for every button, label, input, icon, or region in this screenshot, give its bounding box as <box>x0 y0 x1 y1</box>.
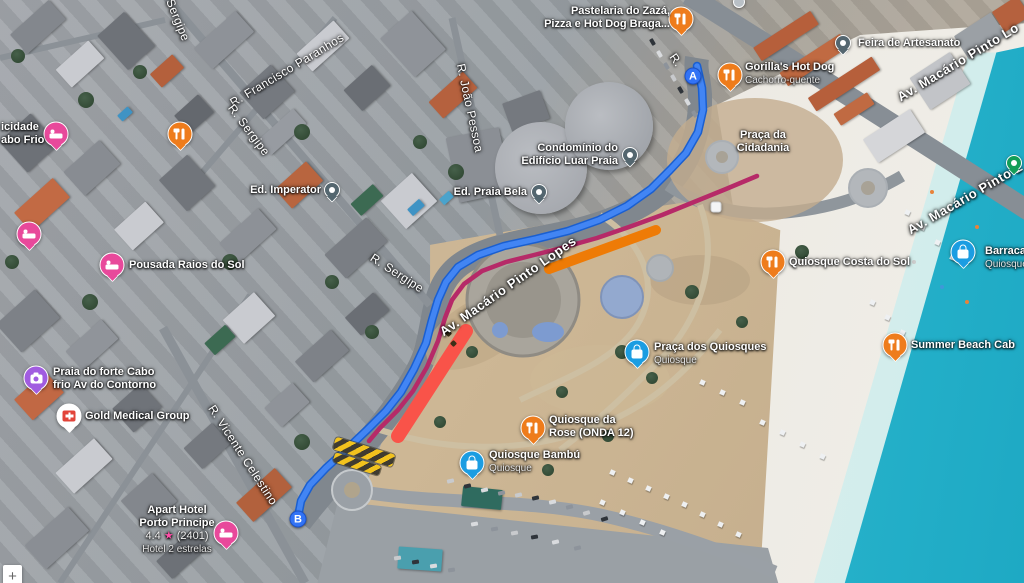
poi-gorillas-hot-dog-label-line: Gorilla's Hot Dog <box>745 61 834 74</box>
knife-icon <box>732 70 735 81</box>
dot-icon <box>1011 160 1017 166</box>
route-end-marker[interactable]: B <box>290 511 307 528</box>
poi-gold-medical-group-label[interactable]: Gold Medical Group <box>85 410 190 423</box>
tree <box>365 325 379 339</box>
poi-summer-beach-label-line: Summer Beach Cab <box>911 339 1015 352</box>
poi-apart-hotel-porto-principe-pin[interactable] <box>214 521 239 546</box>
dot-icon <box>627 152 633 158</box>
poi-quiosque-da-rose-label[interactable]: Quiosque daRose (ONDA 12) <box>549 414 634 440</box>
poi-felicidade-clipped-label-line: icidade <box>1 121 44 134</box>
poi-ed-praia-bela-pin[interactable] <box>531 184 547 200</box>
poi-praca-dos-quiosques-label[interactable]: Praça dos QuiosquesQuiosque <box>654 341 766 367</box>
poi-condominio-luar-praia-label-line: Condomínio do <box>521 142 618 155</box>
poi-praca-da-cidadania-label[interactable]: Praça daCidadania <box>737 129 790 155</box>
beach-umbrella <box>940 285 944 289</box>
poi-ed-praia-bela-label-line: Ed. Praia Bela <box>454 186 527 199</box>
poi-quiosque-bambu-pin[interactable] <box>460 451 485 476</box>
poi-felicidade-clipped-label[interactable]: icidadeabo Frio <box>1 121 44 147</box>
poi-barraca-label-line: Quiosque <box>985 258 1024 271</box>
tree <box>556 386 568 398</box>
tree <box>685 285 699 299</box>
poi-praia-do-forte-label-line: frio Av do Contorno <box>53 379 156 392</box>
beach-umbrella <box>975 225 979 229</box>
poi-barraca-label-line: Barraca <box>985 245 1024 258</box>
poi-apart-hotel-porto-principe-label-line: Porto Principe <box>139 517 214 530</box>
poi-pastelaria-label-line: Pizza e Hot Dog Braga... <box>544 18 670 31</box>
beach-umbrella <box>930 190 934 194</box>
poi-park-pin-pin[interactable] <box>1006 155 1022 171</box>
beach-umbrella <box>912 260 916 264</box>
bed-icon <box>50 134 63 139</box>
hotel-category: Hotel 2 estrelas <box>139 543 214 556</box>
beach-umbrella <box>965 300 969 304</box>
poi-felicidade-clipped-pin[interactable] <box>44 122 69 147</box>
route-start-marker[interactable]: A <box>685 68 702 85</box>
bed-icon <box>23 234 36 239</box>
poi-feira-artesanato-label[interactable]: Feira de Artesanato <box>858 37 960 50</box>
fork-icon <box>890 340 893 351</box>
poi-pousada-raios-do-sol-pin[interactable] <box>100 253 125 278</box>
poi-ed-imperator-label[interactable]: Ed. Imperator <box>250 184 321 197</box>
poi-ed-imperator-pin[interactable] <box>324 182 340 198</box>
poi-condominio-luar-praia-label-line: Edifício Luar Praia <box>521 155 618 168</box>
poi-praca-dos-quiosques-label-line: Praça dos Quiosques <box>654 341 766 354</box>
tree <box>466 346 478 358</box>
poi-summer-beach-pin[interactable] <box>883 333 908 358</box>
fork-icon <box>725 70 728 81</box>
poi-quiosque-costa-do-sol-label[interactable]: Quiosque Costa do Sol <box>789 256 910 269</box>
bed-icon <box>220 533 233 538</box>
poi-praca-da-cidadania-label-line: Praça da <box>737 129 790 142</box>
tree <box>294 124 310 140</box>
poi-apart-hotel-porto-principe-label[interactable]: Apart HotelPorto Principe4.4 ★ (2401)Hot… <box>139 504 214 556</box>
tree <box>448 164 464 180</box>
medical-cross-icon <box>63 411 76 422</box>
shopping-bag-icon <box>958 250 969 259</box>
rating-value: 4.4 <box>145 530 163 542</box>
poi-quiosque-da-rose-label-line: Rose (ONDA 12) <box>549 427 634 440</box>
tree <box>325 275 339 289</box>
poi-quiosque-costa-do-sol-label-line: Quiosque Costa do Sol <box>789 256 910 269</box>
poi-hotel-pin-unlabeled-pin[interactable] <box>17 222 42 247</box>
tree <box>413 135 427 149</box>
fork-icon <box>175 129 178 140</box>
poi-praia-do-forte-label[interactable]: Praia do forte Cabofrio Av do Contorno <box>53 366 156 392</box>
poi-quiosque-bambu-label-line: Quiosque <box>489 462 580 475</box>
camera-icon <box>30 375 42 384</box>
poi-pousada-raios-do-sol-label[interactable]: Pousada Raios do Sol <box>129 259 245 272</box>
dot-icon <box>840 40 846 46</box>
shopping-bag-icon <box>467 461 478 470</box>
poi-quiosque-da-rose-label-line: Quiosque da <box>549 414 634 427</box>
zoom-in-button[interactable]: + <box>3 565 22 583</box>
star-icon: ★ <box>164 530 174 542</box>
poi-gorillas-hot-dog-label-line: Cachorro-quente <box>745 74 834 87</box>
tree <box>434 416 446 428</box>
tree <box>5 255 19 269</box>
poi-restaurant-pin-unlabeled-pin[interactable] <box>168 122 193 147</box>
poi-condominio-luar-praia-pin[interactable] <box>622 147 638 163</box>
poi-feira-artesanato-label-line: Feira de Artesanato <box>858 37 960 50</box>
knife-icon <box>897 340 900 351</box>
tree <box>78 92 94 108</box>
poi-pastelaria-pin[interactable] <box>669 7 694 32</box>
poi-barraca-label[interactable]: BarracaQuiosque <box>985 245 1024 271</box>
fork-icon <box>768 257 771 268</box>
bed-icon <box>106 265 119 270</box>
tree <box>11 49 25 63</box>
poi-quiosque-da-rose-pin[interactable] <box>521 416 546 441</box>
review-count: (2401) <box>174 530 209 542</box>
knife-icon <box>683 14 686 25</box>
poi-gold-medical-group-pin[interactable] <box>57 404 82 429</box>
poi-ed-praia-bela-label[interactable]: Ed. Praia Bela <box>454 186 527 199</box>
poi-praia-do-forte-pin[interactable] <box>24 366 49 391</box>
tree <box>82 294 98 310</box>
poi-barraca-pin[interactable] <box>951 240 976 265</box>
poi-pastelaria-label-line: Pastelaria do Zazá, <box>544 5 670 18</box>
tree <box>646 372 658 384</box>
map-canvas[interactable]: ABPastelaria do Zazá,Pizza e Hot Dog Bra… <box>0 0 1024 583</box>
poi-transit-stop-pin[interactable] <box>711 202 722 213</box>
poi-praca-dos-quiosques-pin[interactable] <box>625 340 650 365</box>
poi-quiosque-bambu-label[interactable]: Quiosque BambúQuiosque <box>489 449 580 475</box>
poi-pastelaria-label[interactable]: Pastelaria do Zazá,Pizza e Hot Dog Braga… <box>544 5 670 31</box>
poi-ed-imperator-label-line: Ed. Imperator <box>250 184 321 197</box>
poi-quiosque-costa-do-sol-pin[interactable] <box>761 250 786 275</box>
poi-praia-do-forte-label-line: Praia do forte Cabo <box>53 366 156 379</box>
poi-pousada-raios-do-sol-label-line: Pousada Raios do Sol <box>129 259 245 272</box>
poi-praca-da-cidadania-label-line: Cidadania <box>737 142 790 155</box>
dot-icon <box>329 187 335 193</box>
shopping-bag-icon <box>632 350 643 359</box>
tree <box>736 316 748 328</box>
fork-icon <box>676 14 679 25</box>
poi-felicidade-clipped-label-line: abo Frio <box>1 134 44 147</box>
knife-icon <box>535 423 538 434</box>
poi-gold-medical-group-label-line: Gold Medical Group <box>85 410 190 423</box>
fork-icon <box>528 423 531 434</box>
poi-praca-dos-quiosques-label-line: Quiosque <box>654 354 766 367</box>
poi-feira-artesanato-pin[interactable] <box>835 35 851 51</box>
dot-icon <box>536 189 542 195</box>
poi-gorillas-hot-dog-pin[interactable] <box>718 63 743 88</box>
poi-quiosque-bambu-label-line: Quiosque Bambú <box>489 449 580 462</box>
building <box>397 546 442 571</box>
tree <box>133 65 147 79</box>
poi-gorillas-hot-dog-label[interactable]: Gorilla's Hot DogCachorro-quente <box>745 61 834 87</box>
tree <box>294 434 310 450</box>
poi-apart-hotel-porto-principe-label-line: Apart Hotel <box>139 504 214 517</box>
poi-summer-beach-label[interactable]: Summer Beach Cab <box>911 339 1015 352</box>
knife-icon <box>182 129 185 140</box>
knife-icon <box>775 257 778 268</box>
poi-condominio-luar-praia-label[interactable]: Condomínio doEdifício Luar Praia <box>521 142 618 168</box>
